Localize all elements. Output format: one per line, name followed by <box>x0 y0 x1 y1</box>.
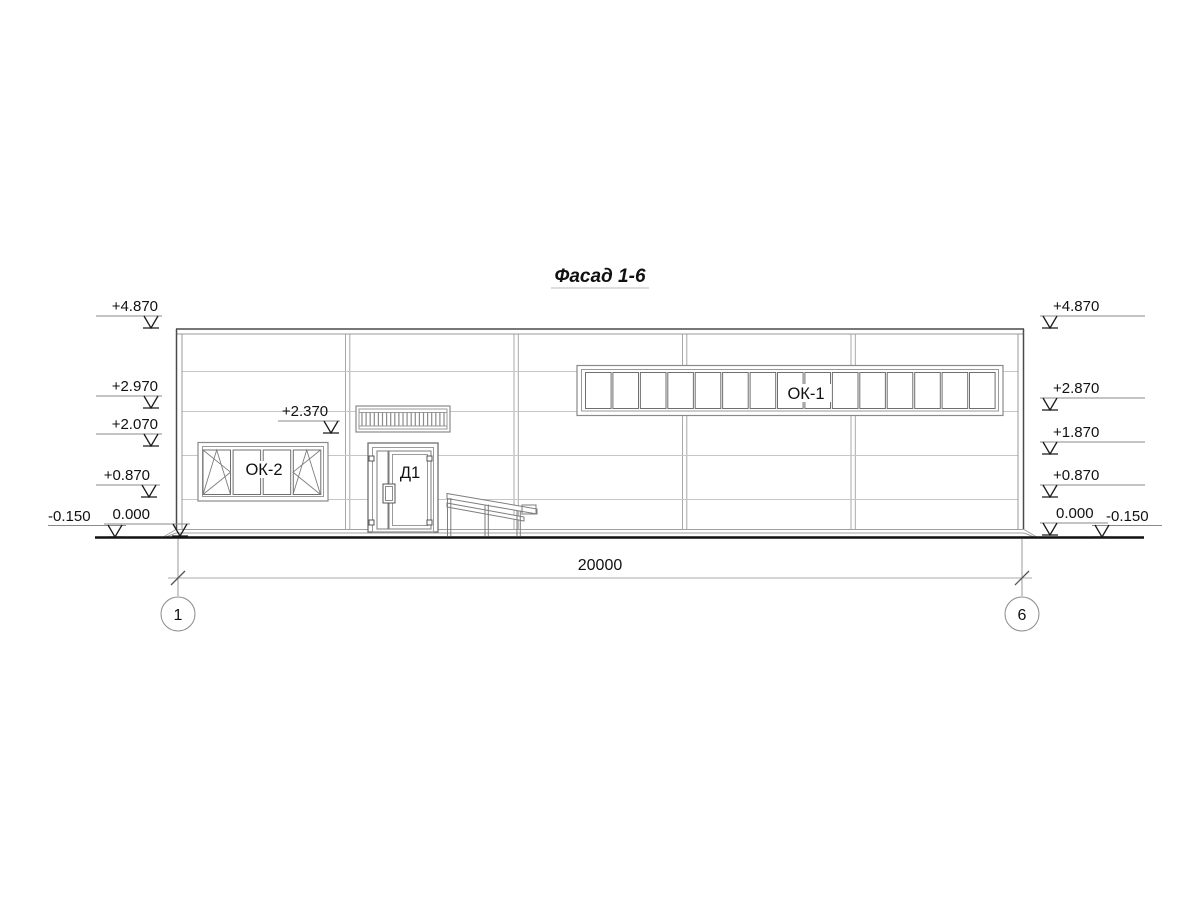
elevation-arrow-icon <box>1042 523 1058 535</box>
louver-grille <box>356 406 450 432</box>
door-label: Д1 <box>400 464 420 482</box>
elevation-arrow-icon <box>1042 442 1058 454</box>
facade-drawing: Фасад 1-6 ОК-1 <box>0 0 1200 900</box>
svg-text:+2.970: +2.970 <box>112 378 158 395</box>
dimension-line: 20000 <box>168 539 1032 596</box>
title-text: Фасад 1-6 <box>554 266 645 287</box>
axis-circle-6: 6 <box>1005 597 1039 631</box>
svg-text:+4.870: +4.870 <box>1053 298 1099 315</box>
plinth-right-bevel <box>1024 530 1036 537</box>
svg-text:+2.070: +2.070 <box>112 416 158 433</box>
elevation-marks-right: +4.870 +2.870 +1.870 +0.870 0.000 -0.150 <box>1040 298 1162 537</box>
door-hinge <box>369 456 374 461</box>
elevation-mark: +4.870 <box>96 298 162 328</box>
svg-text:0.000: 0.000 <box>1056 505 1094 522</box>
elevation-mark: +2.970 <box>96 378 162 408</box>
svg-text:-0.150: -0.150 <box>48 508 91 525</box>
svg-text:+2.370: +2.370 <box>282 403 328 420</box>
axis-left-number: 1 <box>174 607 183 624</box>
svg-text:+2.870: +2.870 <box>1053 380 1099 397</box>
elevation-mark: +1.870 <box>1040 424 1145 454</box>
elevation-mark: +0.870 <box>96 467 160 497</box>
svg-text:-0.150: -0.150 <box>1106 508 1149 525</box>
elevation-arrow-icon <box>1042 398 1058 410</box>
elevation-arrow-icon <box>1094 525 1110 537</box>
door-hinge <box>427 520 432 525</box>
drawing-title: Фасад 1-6 <box>551 266 649 288</box>
svg-text:+1.870: +1.870 <box>1053 424 1099 441</box>
window-ok1: ОК-1 <box>577 366 1003 416</box>
svg-text:0.000: 0.000 <box>112 506 150 523</box>
svg-text:+0.870: +0.870 <box>104 467 150 484</box>
window-ok2-label: ОК-2 <box>245 461 282 479</box>
axis-right-number: 6 <box>1018 607 1027 624</box>
elevation-arrow-icon <box>143 396 159 408</box>
elevation-arrow-icon <box>1042 316 1058 328</box>
louver-slat-grid <box>362 413 444 427</box>
door-hinge <box>427 456 432 461</box>
axis-circle-1: 1 <box>161 597 195 631</box>
elevation-mark: +2.870 <box>1040 380 1145 410</box>
elevation-mark: +0.870 <box>1040 467 1145 497</box>
window-ok2: ОК-2 <box>198 443 328 502</box>
door-hinge <box>369 520 374 525</box>
door-d1: Д1 <box>368 443 438 532</box>
elevation-arrow-icon <box>323 421 339 433</box>
elevation-mark: +2.070 <box>96 416 162 446</box>
svg-text:+0.870: +0.870 <box>1053 467 1099 484</box>
plinth <box>164 530 1036 537</box>
elevation-arrow-icon <box>1042 485 1058 497</box>
elevation-arrow-icon <box>143 434 159 446</box>
elevation-arrow-icon <box>143 316 159 328</box>
elevation-arrow-icon <box>107 525 123 537</box>
dimension-value: 20000 <box>578 557 623 574</box>
drawing-sheet: Фасад 1-6 ОК-1 <box>0 0 1200 900</box>
elevation-arrow-icon <box>141 485 157 497</box>
svg-text:+4.870: +4.870 <box>112 298 158 315</box>
elevation-mark: +4.870 <box>1040 298 1145 328</box>
door-elevation-mark: +2.370 <box>278 403 340 433</box>
elevation-marks-left: +4.870 +2.970 +2.070 +0.870 0.000 -0.150 <box>48 298 190 537</box>
window-ok1-label: ОК-1 <box>787 385 824 403</box>
